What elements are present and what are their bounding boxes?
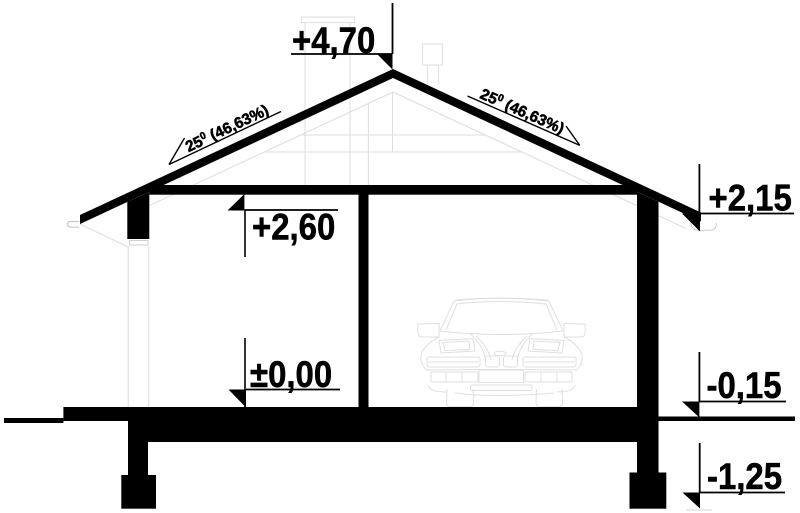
svg-text:+2,15: +2,15: [709, 178, 792, 219]
svg-text:+2,60: +2,60: [252, 207, 335, 248]
svg-text:-1,25: -1,25: [707, 456, 782, 497]
svg-text:+4,70: +4,70: [292, 20, 375, 61]
svg-text:-0,15: -0,15: [707, 365, 782, 406]
svg-text:±0,00: ±0,00: [250, 354, 332, 395]
